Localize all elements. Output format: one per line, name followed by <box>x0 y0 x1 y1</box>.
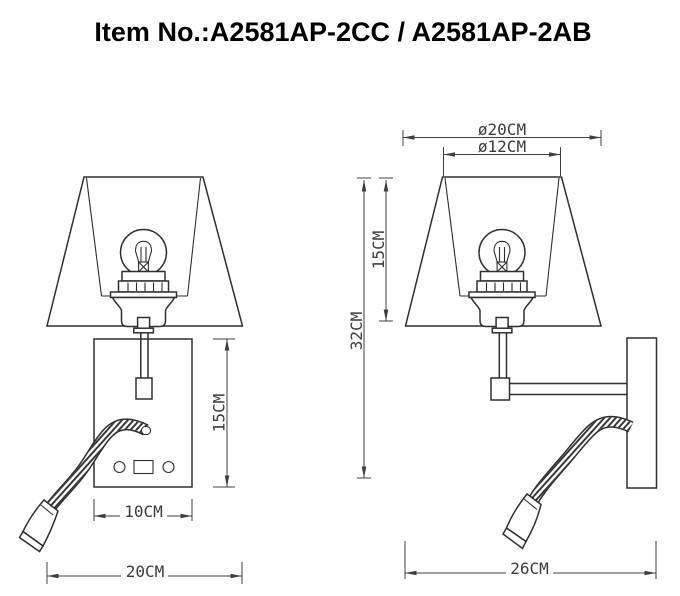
lamp-dimension-drawing: Item No.:A2581AP-2CC / A2581AP-2AB <box>0 0 680 596</box>
dim-plate-height: 15CM <box>210 339 236 487</box>
gooseneck-reading-light-side <box>503 422 631 549</box>
dim-shade-height: 15CM <box>369 178 393 321</box>
button-left <box>114 462 125 473</box>
dim-shade-width: 20CM <box>47 562 242 584</box>
side-view: ø20CM ø12CM 15CM 32CM <box>347 120 657 579</box>
tube-mount-cap <box>141 426 150 434</box>
button-right <box>163 462 174 473</box>
dim-overall-depth: 26CM <box>405 541 656 579</box>
gooseneck-reading-light-front <box>20 424 151 551</box>
dim-label-overall-height: 32CM <box>347 312 366 351</box>
dim-label-shade-width: 20CM <box>126 562 165 581</box>
wall-plate <box>627 338 657 488</box>
technical-drawing: Item No.:A2581AP-2CC / A2581AP-2AB <box>0 0 680 596</box>
dim-label-shade-height: 15CM <box>369 231 388 270</box>
dim-shade-top-diameter: ø12CM <box>444 137 561 176</box>
bulb-and-socket-side <box>469 230 535 379</box>
dim-label-overall-depth: 26CM <box>510 559 549 578</box>
dim-label-plate-height: 15CM <box>210 394 229 433</box>
dim-label-shade-top-diameter: ø12CM <box>478 137 526 156</box>
usb-port <box>134 461 153 474</box>
dim-overall-height: 32CM <box>347 178 371 478</box>
switch-block <box>136 378 152 399</box>
dim-plate-width: 10CM <box>94 499 192 521</box>
front-view: 15CM 10CM 20CM <box>20 177 243 584</box>
mounting-arm <box>510 384 628 395</box>
control-panel <box>114 461 174 474</box>
page-title: Item No.:A2581AP-2CC / A2581AP-2AB <box>94 17 591 47</box>
dim-label-plate-width: 10CM <box>124 502 163 521</box>
elbow-joint <box>491 378 510 400</box>
bulb-and-socket-front <box>111 230 177 379</box>
